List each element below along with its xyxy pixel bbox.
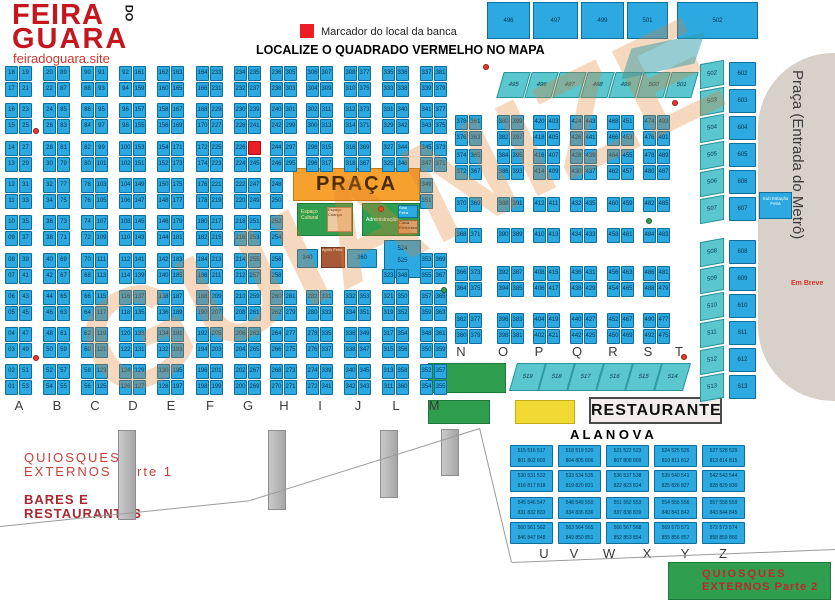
boundary-line [479, 428, 512, 562]
ala-nova-box: 557 558 559843 844 845 [702, 497, 745, 519]
ala-nova-box: 548 549 550834 835 836 [558, 497, 601, 519]
stall-cell: 363 [434, 306, 447, 321]
stall-cell: 39 [19, 253, 32, 268]
stall-cell: 230 [234, 103, 247, 118]
stall-cell: 442 [570, 329, 583, 344]
stall-cell: 56 [81, 380, 94, 395]
ala-nova-box: 569 570 571855 856 857 [654, 522, 697, 544]
stall-cell: 464 [607, 149, 620, 164]
top-bar: 496 [487, 2, 530, 39]
stall-cell: 428 [570, 149, 583, 164]
stall-cell: 65 [57, 290, 70, 305]
stall-cell: 97 [95, 119, 108, 134]
stall-cell: 208 [234, 306, 247, 321]
stall-cell: 485 [657, 197, 670, 212]
stall-cell: 19 [19, 66, 32, 81]
stall-cell: 379 [434, 82, 447, 97]
map-headline: LOCALIZE O QUADRADO VERMELHO NO MAPA [256, 43, 545, 57]
stall-cell: 197 [171, 380, 184, 395]
right-column-cell: 613 [729, 375, 756, 399]
stall-cell: 125 [95, 380, 108, 395]
stall-cell: 365 [469, 149, 482, 164]
stall-cell: 377 [358, 66, 371, 81]
stall-cell: 215 [210, 231, 223, 246]
stall-cell: 313 [320, 119, 333, 134]
stall-cell: 224 [234, 157, 247, 172]
stall-cell: 308 [344, 66, 357, 81]
stall-cell: 343 [358, 380, 371, 395]
stall-cell: 166 [196, 82, 209, 97]
stall-cell: 182 [196, 231, 209, 246]
stall-cell: 195 [171, 364, 184, 379]
stall-cell: 90 [81, 66, 94, 81]
stall-cell: 10 [5, 215, 18, 230]
ala-nova-box: 518 519 520804 805 806 [558, 445, 601, 467]
stall-cell: 118 [119, 306, 132, 321]
stall-cell: 132 [157, 343, 170, 358]
stall-cell: 463 [621, 266, 634, 281]
stall-cell: 398 [497, 329, 510, 344]
stall-cell: 59 [57, 343, 70, 358]
stall-cell: 252 [270, 215, 283, 230]
stall-cell: 159 [133, 82, 146, 97]
stall-cell: 486 [643, 266, 656, 281]
stall-cell: 41 [19, 269, 32, 284]
stall-cell: 84 [81, 119, 94, 134]
stall-cell: 393 [511, 165, 524, 180]
stall-cell: 334 [344, 306, 357, 321]
stall-cell: 91 [95, 66, 108, 81]
stall-cell: 259 [248, 290, 261, 305]
stall-cell: 318 [344, 157, 357, 172]
green-dot [646, 218, 652, 224]
stall-cell: 42 [43, 269, 56, 284]
stall-cell: 475 [657, 329, 670, 344]
stall-cell: 315 [320, 141, 333, 156]
right-strip-cell: 509 [700, 265, 724, 294]
stall-cell: 436 [570, 266, 583, 281]
stall-cell: 200 [234, 380, 247, 395]
stall-cell: 374 [455, 149, 468, 164]
stall-cell: 406 [533, 282, 546, 297]
stall-cell: 329 [382, 119, 395, 134]
stall-cell: 270 [270, 380, 283, 395]
stall-cell: 108 [119, 215, 132, 230]
stall-cell: 179 [171, 215, 184, 230]
praca-tan-box-2: Caixa Eletrônico [398, 220, 418, 234]
stall-cell: 76 [81, 194, 94, 209]
stall-cell: 74 [81, 215, 94, 230]
stall-cell: 67 [57, 269, 70, 284]
stall-cell: 435 [584, 197, 597, 212]
stall-cell: 478 [643, 149, 656, 164]
stall-cell: 339 [320, 364, 333, 379]
ala-nova-box: 536 537 538822 823 824 [606, 470, 649, 492]
stall-cell: 275 [284, 343, 297, 358]
stall-cell: 397 [511, 131, 524, 146]
stall-cell: 93 [95, 82, 108, 97]
red-dot [33, 355, 39, 361]
stall-cell: 164 [196, 66, 209, 81]
stall-cell: 23 [19, 103, 32, 118]
stall-cell: 207 [210, 306, 223, 321]
stall-cell: 338 [396, 82, 409, 97]
stall-cell: 218 [234, 215, 247, 230]
stall-cell: 361 [434, 327, 447, 342]
stall-cell: 242 [270, 119, 283, 134]
stall-cell: 323 [382, 269, 395, 284]
column-letter: D [122, 398, 144, 413]
row-letter: R [602, 344, 624, 359]
stall-cell: 143 [133, 231, 146, 246]
stall-cell: 17 [5, 82, 18, 97]
stall-cell: 333 [320, 306, 333, 321]
stall-cell: 410 [533, 228, 546, 243]
stall-cell: 345 [358, 364, 371, 379]
stall-cell: 483 [657, 228, 670, 243]
stall-cell: 402 [533, 329, 546, 344]
stall-cell: 72 [81, 231, 94, 246]
stall-cell: 186 [196, 269, 209, 284]
row-letter: P [528, 344, 550, 359]
praca-blue-small-box: Sala Feira [398, 205, 418, 218]
stall-cell: 85 [57, 103, 70, 118]
stall-cell: 265 [248, 343, 261, 358]
stall-cell: 69 [57, 253, 70, 268]
stall-cell: 388 [497, 197, 510, 212]
stall-cell: 396 [497, 313, 510, 328]
stall-cell: 389 [511, 228, 524, 243]
stall-cell: 362 [455, 313, 468, 328]
stall-cell: 162 [157, 66, 170, 81]
stall-cell: 163 [171, 66, 184, 81]
stall-cell: 251 [248, 215, 261, 230]
stall-cell: 70 [81, 253, 94, 268]
stall-cell: 63 [57, 306, 70, 321]
stall-cell: 314 [344, 119, 357, 134]
stall-cell: 25 [19, 119, 32, 134]
stall-cell: 303 [284, 82, 297, 97]
stall-cell: 07 [5, 269, 18, 284]
top-bar: 497 [533, 2, 578, 39]
stall-cell: 129 [133, 364, 146, 379]
right-column-cell: 605 [729, 143, 756, 167]
stall-cell: 180 [196, 215, 209, 230]
stall-cell: 254 [270, 231, 283, 246]
top-bar: 501 [627, 2, 668, 39]
legend-marker-swatch [300, 24, 314, 38]
stall-cell: 452 [607, 313, 620, 328]
stall-cell: 13 [5, 157, 18, 172]
right-strip-cell: 506 [700, 168, 724, 197]
stall-cell: 146 [157, 215, 170, 230]
stall-cell: 44 [43, 290, 56, 305]
stall-cell: 415 [547, 266, 560, 281]
stall-cell: 439 [584, 149, 597, 164]
stall-cell: 301 [284, 103, 297, 118]
stall-cell: 240 [270, 103, 283, 118]
stall-cell: 260 [270, 290, 283, 305]
stall-cell: 174 [196, 157, 209, 172]
column-letter: E [160, 398, 182, 413]
stall-cell: 68 [81, 269, 94, 284]
stall-cell: 376 [455, 131, 468, 146]
stall-cell: 246 [270, 157, 283, 172]
stall-cell: 75 [57, 194, 70, 209]
stall-cell: 144 [157, 231, 170, 246]
right-strip-cell: 502 [700, 60, 724, 89]
stall-cell: 345 [420, 141, 433, 156]
stall-cell: 05 [5, 306, 18, 321]
stall-cell: 405 [547, 131, 560, 146]
stall-cell: 219 [210, 194, 223, 209]
right-strip-cell: 508 [700, 238, 724, 267]
stall-cell: 373 [434, 141, 447, 156]
stall-cell: 47 [19, 327, 32, 342]
site-link[interactable]: feiradoguara.site [13, 51, 110, 66]
row-letter: Q [566, 344, 588, 359]
quiosques1-line2: EXTERNOS Parte 1 [24, 464, 173, 479]
stall-cell: 456 [607, 266, 620, 281]
stall-cell: 82 [81, 141, 94, 156]
column-letter: B [46, 398, 68, 413]
stall-cell: 225 [210, 141, 223, 156]
stall-cell: 408 [533, 266, 546, 281]
stall-cell: 106 [119, 194, 132, 209]
stall-cell: 223 [210, 157, 223, 172]
stall-cell: 480 [643, 165, 656, 180]
stall-cell: 347 [358, 343, 371, 358]
stall-cell: 28 [43, 141, 56, 156]
stall-cell: 432 [570, 197, 583, 212]
stall-cell: 57 [57, 364, 70, 379]
stall-cell: 01 [5, 380, 18, 395]
stall-cell: 277 [284, 327, 297, 342]
row-letter: X [636, 546, 658, 561]
stall-cell: 363 [469, 131, 482, 146]
stall-cell: 55 [57, 380, 70, 395]
stall-cell: 434 [570, 228, 583, 243]
stall-cell: 111 [95, 253, 108, 268]
stall-cell: 206 [234, 327, 247, 342]
stall-cell: 378 [455, 115, 468, 130]
bares-line1: BARES E [24, 492, 89, 507]
substation-label: Sub Estação Feira [760, 193, 791, 206]
stall-cell: 311 [320, 103, 333, 118]
stall-cell: 61 [57, 327, 70, 342]
stall-cell: 311 [382, 380, 395, 395]
ala-nova-box: 563 564 565849 850 851 [558, 522, 601, 544]
stall-cell: 134 [157, 327, 170, 342]
stall-cell: 237 [248, 82, 261, 97]
stall-cell: 341 [420, 103, 433, 118]
column-letter: I [309, 398, 331, 413]
stall-cell: 176 [196, 178, 209, 193]
stall-cell: 337 [420, 66, 433, 81]
stall-cell: 305 [284, 66, 297, 81]
stall-cell: 229 [210, 103, 223, 118]
stall-cell: 261 [248, 306, 261, 321]
stall-cell: 86 [81, 103, 94, 118]
stall-cell: 147 [133, 194, 146, 209]
stall-cell: 412 [533, 197, 546, 212]
stall-cell: 04 [5, 327, 18, 342]
stall-cell: 373 [358, 103, 371, 118]
ala-nova-box: 530 531 532816 817 818 [510, 470, 553, 492]
stall-cell: 433 [584, 228, 597, 243]
stall-cell: 40 [43, 253, 56, 268]
red-dot [483, 64, 489, 70]
stall-cell: 302 [306, 103, 319, 118]
stall-cell: 227 [210, 119, 223, 134]
stall-cell: 313 [382, 364, 395, 379]
stall-cell: 425 [584, 329, 597, 344]
stall-cell: 269 [248, 380, 261, 395]
stall-cell: 53 [19, 380, 32, 395]
stall-cell: 189 [171, 306, 184, 321]
stall-cell: 264 [270, 327, 283, 342]
praca-title: PRAÇA [316, 173, 397, 195]
stall-cell: 171 [171, 141, 184, 156]
stall-cell: 115 [95, 290, 108, 305]
stall-cell: 377 [469, 313, 482, 328]
stall-cell: 404 [533, 313, 546, 328]
stall-cell: 199 [210, 380, 223, 395]
stall-cell: 121 [95, 343, 108, 358]
quiosques2-line1: QUIOSQUES [702, 568, 787, 580]
stall-cell: 372 [455, 165, 468, 180]
stall-cell: 304 [306, 82, 319, 97]
stall-cell: 332 [344, 290, 357, 305]
column-letter: J [347, 398, 369, 413]
stall-cell: 250 [270, 194, 283, 209]
stall-cell: 100 [119, 141, 132, 156]
stall-cell: 60 [81, 343, 94, 358]
stall-cell: 255 [248, 253, 261, 268]
stall-cell: 114 [119, 269, 132, 284]
row-letter: O [492, 344, 514, 359]
stall-cell: 386 [497, 165, 510, 180]
stall-cell: 424 [570, 115, 583, 130]
stall-cell: 349 [358, 327, 371, 342]
stall-cell: 409 [547, 165, 560, 180]
stall-cell: 375 [469, 282, 482, 297]
stall-cell: 193 [171, 343, 184, 358]
stall-cell: 488 [643, 282, 656, 297]
stall-cell: 438 [570, 282, 583, 297]
stall-cell: 337 [320, 343, 333, 358]
stall-cell: 421 [547, 329, 560, 344]
stall-cell: 12 [5, 178, 18, 193]
stall-cell: 02 [5, 364, 18, 379]
stall-cell: 77 [57, 178, 70, 193]
praca-tan-box-1: Espaço Criança [327, 207, 352, 232]
stall-cell: 137 [133, 290, 146, 305]
stall-cell: 253 [248, 231, 261, 246]
stall-cell: 342 [396, 119, 409, 134]
stall-cell: 20 [43, 66, 56, 81]
stall-cell: 281 [284, 290, 297, 305]
stall-cell: 117 [95, 306, 108, 321]
stall-cell: 359 [434, 343, 447, 358]
stall-cell: 353 [420, 253, 433, 268]
stall-cell: 64 [81, 306, 94, 321]
stall-cell: 107 [95, 215, 108, 230]
stall-cell: 299 [284, 119, 297, 134]
stall-cell: 209 [210, 290, 223, 305]
stall-cell: 437 [584, 165, 597, 180]
stall-cell: 222 [234, 178, 247, 193]
stall-cell: 21 [19, 82, 32, 97]
stall-cell: 22 [43, 82, 56, 97]
right-strip-cell: 503 [700, 87, 724, 116]
stall-cell: 459 [621, 197, 634, 212]
diagonal-strip-cell: 501 [664, 72, 698, 98]
stall-cell: 173 [171, 157, 184, 172]
stall-cell: 476 [643, 131, 656, 146]
stall-cell: 183 [171, 253, 184, 268]
stall-cell: 440 [570, 313, 583, 328]
stall-cell: 468 [607, 115, 620, 130]
stall-cell: 62 [81, 327, 94, 342]
stall-cell: 103 [95, 178, 108, 193]
quiosques2-line2: EXTERNOS Parte 2 [702, 581, 818, 593]
stall-cell: 87 [57, 82, 70, 97]
stall-cell: 479 [657, 282, 670, 297]
stall-cell: 416 [533, 149, 546, 164]
stall-cell: 267 [248, 364, 261, 379]
stall-cell: 211 [210, 269, 223, 284]
feira-map: FEIRA DO GUARA feiradoguara.site Marcado… [0, 0, 835, 600]
stall-cell: 395 [511, 149, 524, 164]
stall-cell: 346 [396, 157, 409, 172]
stall-cell: 228 [234, 119, 247, 134]
stall-cell: 181 [171, 231, 184, 246]
ala-nova-box: 554 555 556840 841 842 [654, 497, 697, 519]
stall-cell: 391 [511, 197, 524, 212]
column-letter: A [8, 398, 30, 413]
stall-cell: 336 [396, 66, 409, 81]
stall-cell: 45 [19, 306, 32, 321]
stall-cell: 18 [5, 66, 18, 81]
stall-cell: 191 [171, 327, 184, 342]
stall-cell: 465 [621, 282, 634, 297]
stall-cell: 37 [19, 231, 32, 246]
stall-cell: 355 [420, 269, 433, 284]
stall-cell: 110 [119, 231, 132, 246]
stall-cell: 188 [196, 290, 209, 305]
column-letter: H [273, 398, 295, 413]
stall-cell: 96 [119, 103, 132, 118]
stall-cell: 315 [382, 343, 395, 358]
stall-cell: 348 [396, 269, 409, 284]
stall-cell-360: 360 [347, 249, 377, 268]
stall-cell: 382 [497, 131, 510, 146]
stall-cell: 354 [420, 380, 433, 395]
stall-cell: 462 [607, 165, 620, 180]
stall-cell: 203 [210, 343, 223, 358]
stall-cell: 316 [344, 141, 357, 156]
stall-cell: 89 [57, 66, 70, 81]
stall-cell: 127 [133, 380, 146, 395]
stall-cell: 317 [382, 327, 395, 342]
legend-marker-label: Marcador do local da banca [321, 26, 457, 38]
stall-cell: 172 [196, 141, 209, 156]
right-column-cell: 602 [729, 62, 756, 86]
stall-cell: 26 [43, 119, 56, 134]
stall-cell: 371 [469, 228, 482, 243]
stall-cell: 11 [5, 194, 18, 209]
